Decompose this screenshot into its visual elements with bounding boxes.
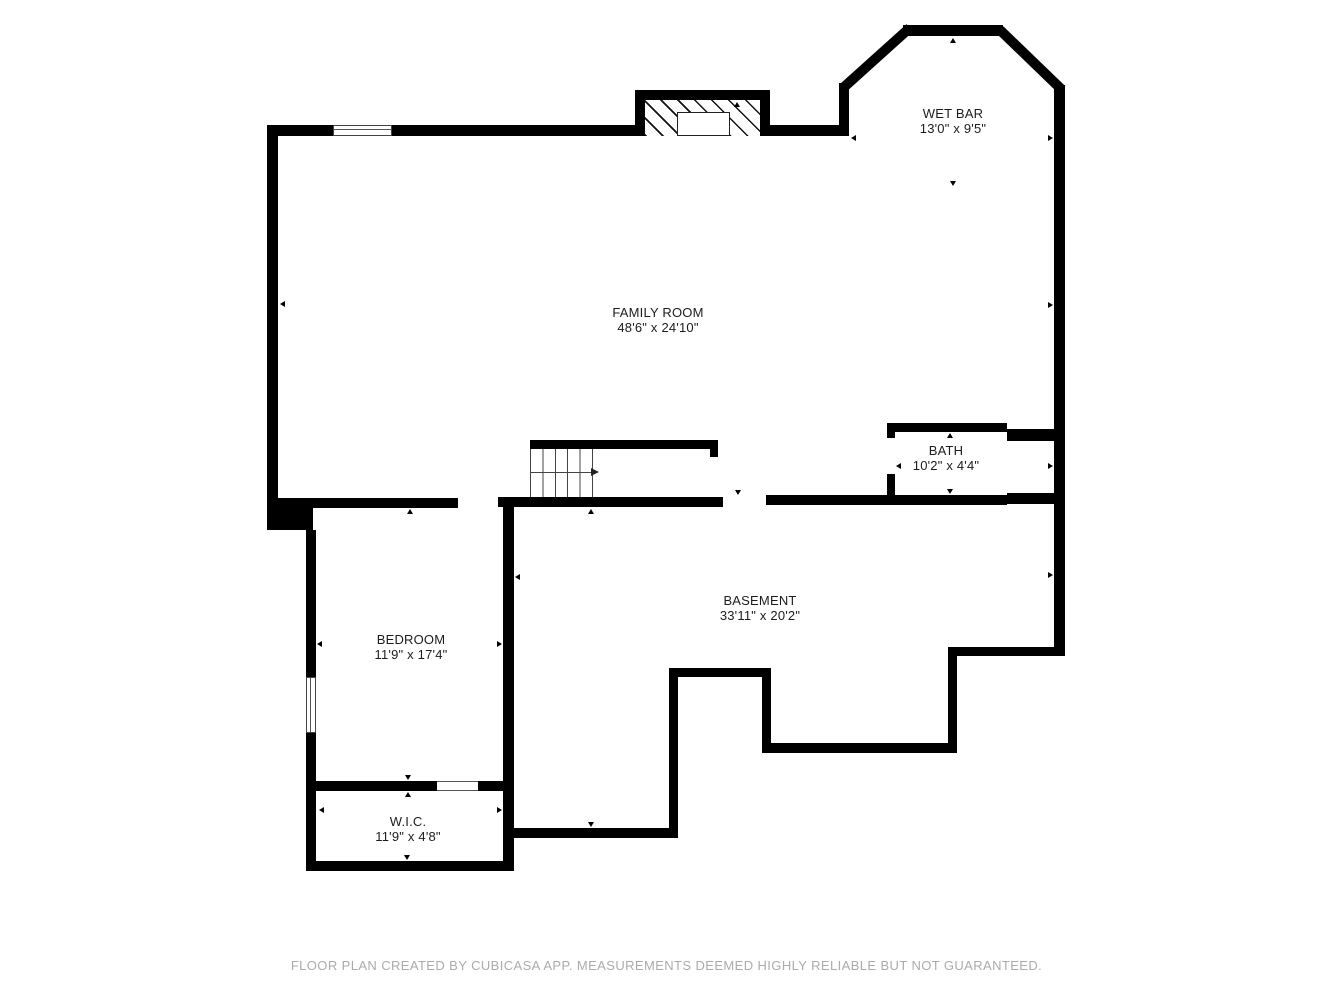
wall-basement-bottom-left xyxy=(503,828,678,838)
wall-bedroom-left-upper xyxy=(306,530,316,677)
room-dims: 11'9" x 17'4" xyxy=(375,648,448,663)
room-dims: 33'11" x 20'2" xyxy=(720,609,800,624)
wall-step-horizontal xyxy=(948,647,1065,656)
room-dims: 10'2" x 4'4" xyxy=(913,459,979,474)
wall-stairs-top xyxy=(530,440,718,449)
wall-fireplace-right xyxy=(760,90,770,136)
stairs-direction-line xyxy=(531,472,591,473)
dim-arrow-left-icon xyxy=(319,807,324,813)
room-name: BASEMENT xyxy=(720,594,800,609)
dim-arrow-left-icon xyxy=(317,641,322,647)
dim-arrow-up-icon xyxy=(947,433,953,438)
wall-family-room-left xyxy=(267,125,278,530)
room-name: FAMILY ROOM xyxy=(612,306,703,321)
room-label-bath: BATH 10'2" x 4'4" xyxy=(913,444,979,473)
footer-disclaimer: FLOOR PLAN CREATED BY CUBICASA APP. MEAS… xyxy=(0,958,1333,973)
wall-notch-top xyxy=(669,668,771,677)
stairs-direction-arrow-icon xyxy=(591,468,599,476)
wall-notch-left xyxy=(669,668,678,838)
wall-bath-block-top-right xyxy=(1007,429,1057,441)
wall-top-segment-2 xyxy=(392,125,635,136)
dim-arrow-left-icon xyxy=(851,135,856,141)
dim-arrow-right-icon xyxy=(1048,135,1053,141)
dim-arrow-up-icon xyxy=(588,509,594,514)
wall-wic-left xyxy=(306,781,316,871)
room-name: WET BAR xyxy=(920,107,986,122)
wall-divider-a xyxy=(267,498,458,508)
room-dims: 48'6" x 24'10" xyxy=(612,321,703,336)
dim-arrow-down-icon xyxy=(405,775,411,780)
wall-wetbar-top xyxy=(903,25,1003,36)
window-family-room xyxy=(333,125,392,136)
room-label-family-room: FAMILY ROOM 48'6" x 24'10" xyxy=(612,306,703,335)
dim-arrow-up-icon xyxy=(950,38,956,43)
wall-bedroom-basement-divider xyxy=(503,497,514,871)
dim-arrow-right-icon xyxy=(1048,463,1053,469)
dim-arrow-down-icon xyxy=(947,489,953,494)
wall-step-vertical xyxy=(948,647,957,753)
wall-top-segment-3 xyxy=(770,125,849,136)
wall-bedroom-left-lower xyxy=(306,733,316,781)
wall-stairs-end-stub xyxy=(710,449,718,457)
wall-bath-stub-top-left xyxy=(887,423,895,438)
wall-divider-b xyxy=(498,497,723,507)
wall-wic-bottom xyxy=(306,861,514,871)
room-label-bedroom: BEDROOM 11'9" x 17'4" xyxy=(375,633,448,662)
wall-right-exterior xyxy=(1054,85,1065,656)
wall-bath-block-bottom-right xyxy=(1007,493,1057,504)
dim-arrow-right-icon xyxy=(497,641,502,647)
room-name: BEDROOM xyxy=(375,633,448,648)
room-name: W.I.C. xyxy=(375,815,441,830)
wall-divider-c xyxy=(766,495,1007,505)
wall-top-segment-1 xyxy=(267,125,333,136)
fireplace-firebox xyxy=(677,112,730,136)
window-bedroom xyxy=(306,677,316,733)
door-opening-wic xyxy=(437,781,478,791)
room-label-wet-bar: WET BAR 13'0" x 9'5" xyxy=(920,107,986,136)
dim-arrow-down-icon xyxy=(950,181,956,186)
room-name: BATH xyxy=(913,444,979,459)
wall-bath-top xyxy=(887,423,1007,432)
dim-arrow-up-icon xyxy=(407,509,413,514)
dim-arrow-down-icon xyxy=(404,855,410,860)
dim-arrow-left-icon xyxy=(515,574,520,580)
room-dims: 11'9" x 4'8" xyxy=(375,830,441,845)
wall-basement-bottom-mid xyxy=(762,743,957,753)
room-label-basement: BASEMENT 33'11" x 20'2" xyxy=(720,594,800,623)
wall-wetbar-diagonal-right xyxy=(997,26,1066,93)
dim-arrow-right-icon xyxy=(1048,572,1053,578)
wall-wetbar-stub xyxy=(839,83,849,136)
floor-plan: FAMILY ROOM 48'6" x 24'10" WET BAR 13'0"… xyxy=(0,0,1333,1000)
stairs-treads xyxy=(530,449,594,497)
wall-bedroom-bottom-1 xyxy=(306,781,437,791)
dim-arrow-left-icon xyxy=(280,301,285,307)
dim-arrow-up-icon xyxy=(405,792,411,797)
dim-arrow-right-icon xyxy=(497,807,502,813)
dim-arrow-up-icon xyxy=(734,102,740,107)
room-dims: 13'0" x 9'5" xyxy=(920,122,986,137)
room-label-wic: W.I.C. 11'9" x 4'8" xyxy=(375,815,441,844)
dim-arrow-left-icon xyxy=(896,463,901,469)
dim-arrow-down-icon xyxy=(588,822,594,827)
dim-arrow-down-icon xyxy=(735,490,741,495)
dim-arrow-right-icon xyxy=(1048,302,1053,308)
wall-fireplace-top xyxy=(635,90,770,100)
wall-notch-right xyxy=(762,668,771,753)
